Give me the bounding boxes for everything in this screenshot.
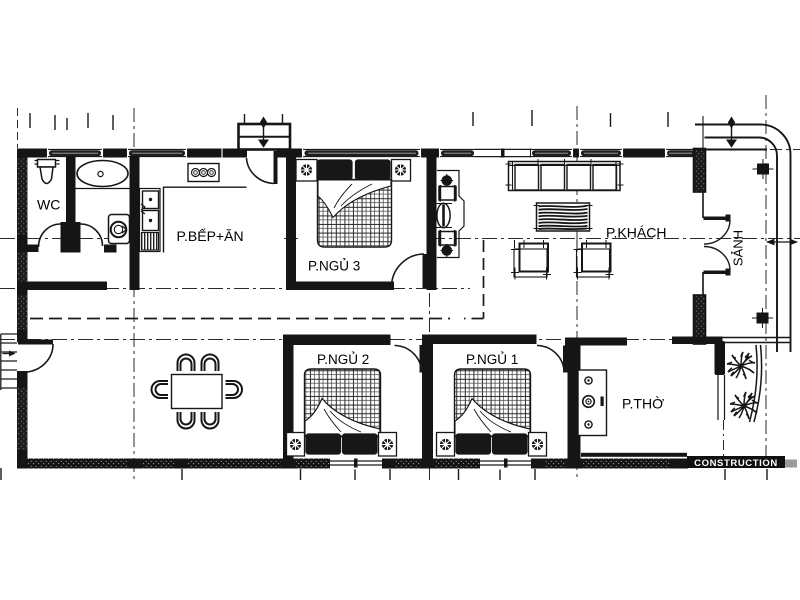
svg-text:CONSTRUCTION: CONSTRUCTION	[694, 458, 778, 469]
svg-text:P.BẾP+ĂN: P.BẾP+ĂN	[177, 228, 244, 244]
svg-text:P.NGỦ 3: P.NGỦ 3	[308, 259, 360, 274]
svg-text:SẢNH: SẢNH	[731, 230, 746, 266]
svg-text:P.KHÁCH: P.KHÁCH	[606, 225, 666, 241]
svg-text:P.NGỦ 1: P.NGỦ 1	[466, 352, 518, 367]
svg-text:P.THỜ: P.THỜ	[622, 396, 664, 412]
svg-text:WC: WC	[37, 197, 60, 213]
svg-text:P.NGỦ 2: P.NGỦ 2	[317, 352, 369, 367]
